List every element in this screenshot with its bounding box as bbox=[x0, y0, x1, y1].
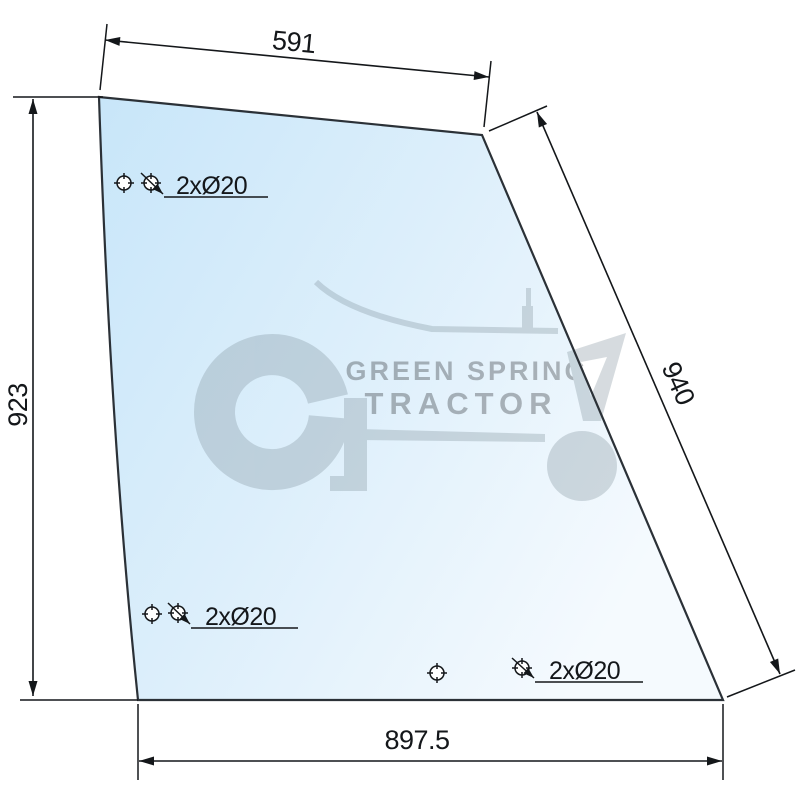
extension-line bbox=[489, 106, 547, 131]
extension-line bbox=[100, 24, 107, 90]
extension-line bbox=[484, 61, 491, 127]
extension-line bbox=[727, 670, 795, 697]
watermark-line1: GREEN SPRING bbox=[345, 356, 588, 386]
drawing-canvas: GREEN SPRING TRACTOR 591 923 940 897.5 bbox=[0, 0, 800, 800]
tractor-wheel-icon bbox=[547, 431, 617, 501]
glass-panel-drawing: GREEN SPRING TRACTOR 591 923 940 897.5 bbox=[0, 0, 800, 800]
tractor-muffler-icon bbox=[522, 306, 533, 331]
dimension-bottom-value: 897.5 bbox=[384, 725, 449, 755]
hole-label-top-left: 2xØ20 bbox=[176, 172, 247, 200]
dimension-top-value: 591 bbox=[271, 25, 317, 59]
watermark-line2: TRACTOR bbox=[365, 386, 558, 421]
dimension-left-value: 923 bbox=[3, 383, 33, 427]
tractor-exhaust-icon bbox=[526, 288, 531, 309]
hole-label-bottom-left: 2xØ20 bbox=[205, 603, 276, 631]
hole-label-bottom-right: 2xØ20 bbox=[549, 657, 620, 685]
logo-g-foot bbox=[330, 476, 367, 491]
